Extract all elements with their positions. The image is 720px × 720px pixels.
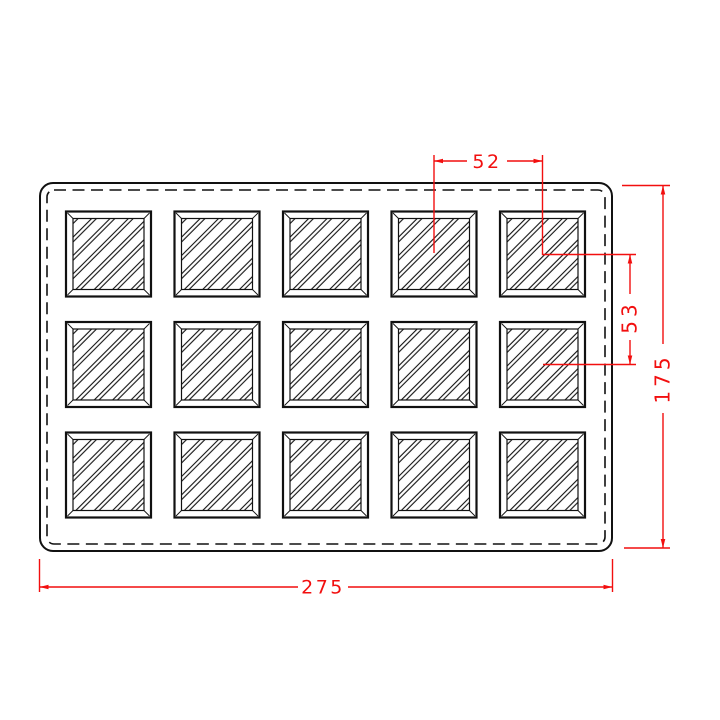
dimension-overall-width: 275 <box>40 559 613 599</box>
cavity <box>66 322 151 407</box>
pitch-y-arrow-top <box>628 255 633 264</box>
height-arrow-bottom <box>661 539 666 548</box>
cavity <box>392 322 477 407</box>
cavity <box>283 322 368 407</box>
cavity <box>175 212 260 297</box>
pitch-y-label: 53 <box>618 300 642 333</box>
height-arrow-top <box>661 186 666 195</box>
cavity <box>500 433 585 518</box>
cavity <box>175 322 260 407</box>
pitch-y-arrow-bottom <box>628 356 633 365</box>
overall-height-label: 175 <box>651 353 675 403</box>
pitch-x-label: 52 <box>472 151 501 173</box>
cavity <box>66 212 151 297</box>
cavity <box>283 433 368 518</box>
cavity <box>175 433 260 518</box>
cavity <box>283 212 368 297</box>
width-arrow-right <box>604 585 613 590</box>
cavities <box>66 212 585 518</box>
pitch-x-arrow-right <box>534 159 543 164</box>
overall-width-label: 275 <box>301 577 345 599</box>
cavity <box>66 433 151 518</box>
cavity <box>392 433 477 518</box>
pitch-x-arrow-left <box>434 159 443 164</box>
mold-body <box>40 183 612 551</box>
width-arrow-left <box>40 585 49 590</box>
mold-technical-drawing: 52 53 175 275 <box>0 0 720 720</box>
dimension-overall-height: 175 <box>622 186 675 549</box>
